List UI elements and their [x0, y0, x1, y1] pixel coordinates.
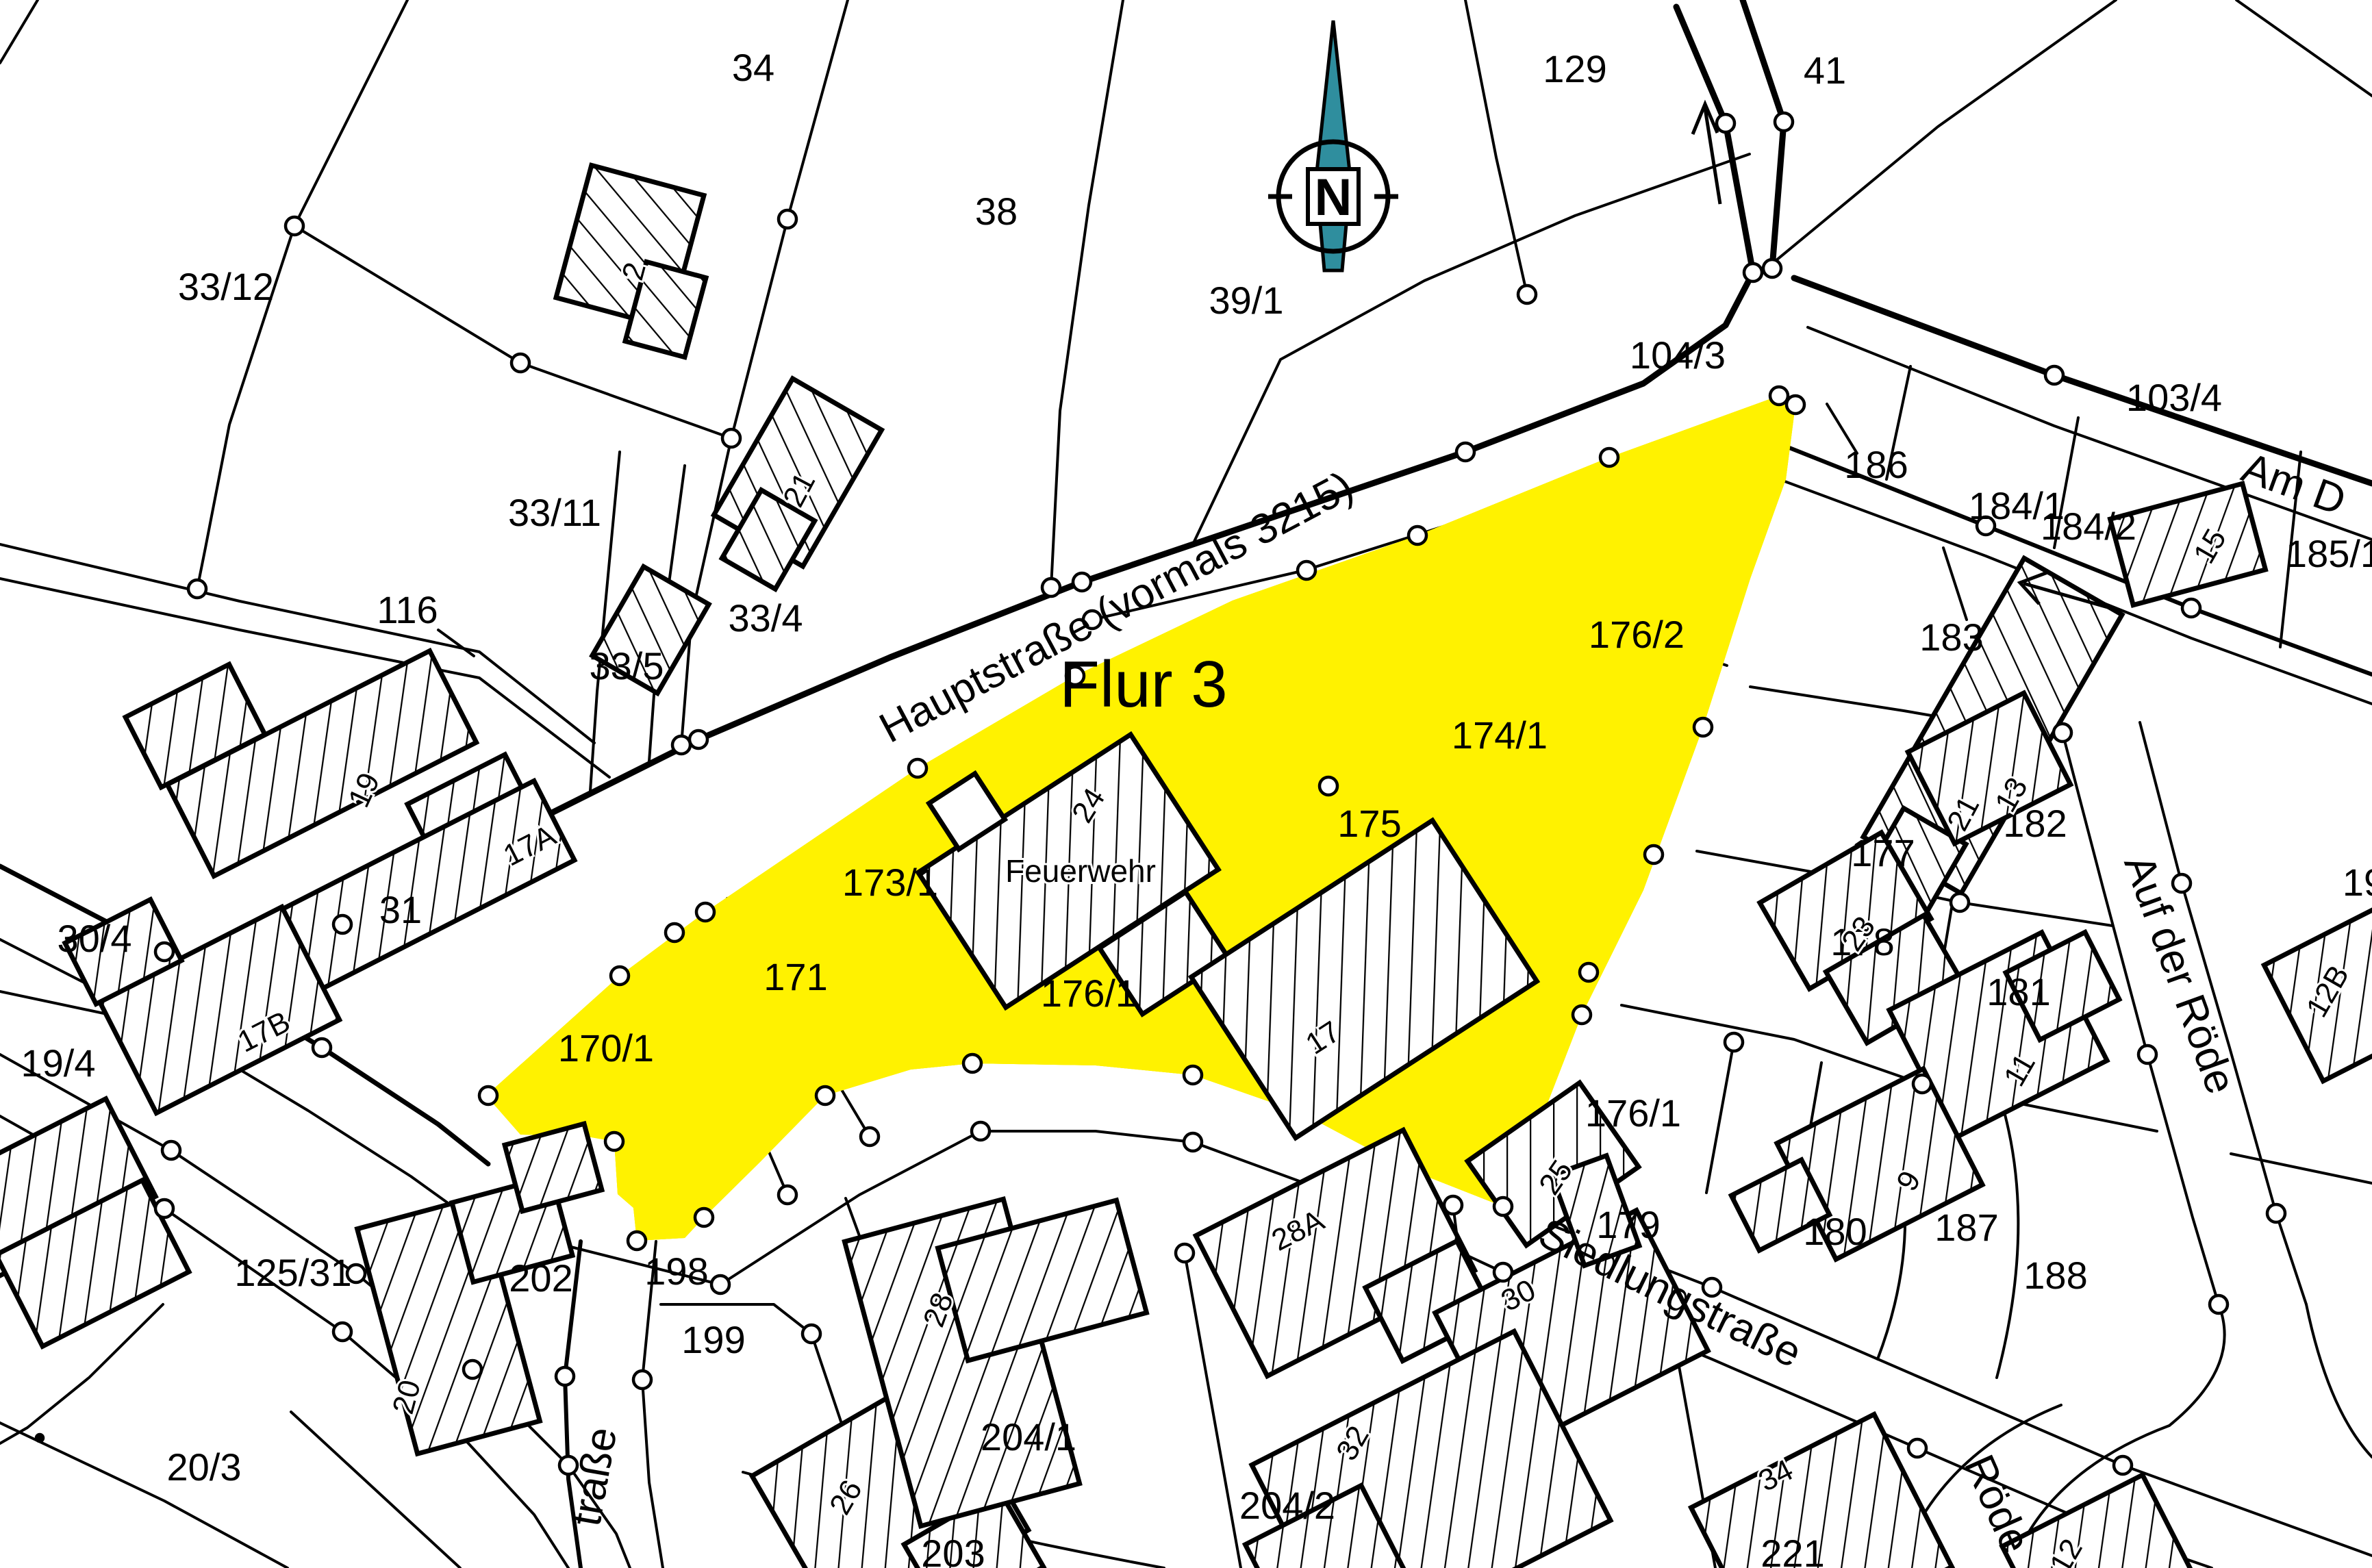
parcel-label-174-1: 174/1	[1452, 713, 1548, 757]
parcel-label-203: 203	[921, 1532, 985, 1568]
parcel-label-33-12: 33/12	[178, 265, 274, 308]
parcel-label-104-3: 104/3	[1630, 333, 1726, 377]
parcel-label-204-1: 204/1	[981, 1415, 1076, 1458]
parcel-label-19-4: 19/4	[21, 1041, 96, 1085]
parcel-label-34: 34	[732, 46, 774, 89]
parcel-label-38: 38	[975, 190, 1018, 233]
parcel-label-175: 175	[1337, 802, 1401, 845]
north-arrow-icon: N	[1268, 21, 1398, 270]
parcel-label-184-2: 184/2	[2041, 505, 2136, 548]
parcel-label-176-2: 176/2	[1589, 613, 1685, 656]
parcel-label-198: 198	[644, 1250, 708, 1293]
parcel-label-181: 181	[1986, 970, 2050, 1013]
cadastral-map: N 343839/112941104/3103/433/1233/1133/43…	[0, 0, 2372, 1568]
street-label-traße: traße	[562, 1424, 626, 1530]
parcel-label-180: 180	[1803, 1210, 1867, 1253]
parcel-label-186: 186	[1844, 443, 1908, 486]
parcel-label-188: 188	[2023, 1254, 2087, 1297]
parcel-label-39-1: 39/1	[1209, 279, 1284, 322]
parcel-label-199: 199	[681, 1318, 745, 1361]
poi-label-feuerwehr: Feuerwehr	[1005, 853, 1156, 889]
parcel-label-221: 221	[1761, 1532, 1824, 1568]
parcel-label-187: 187	[1934, 1206, 1998, 1249]
parcel-label-116: 116	[377, 588, 438, 631]
street-label-röde: Röde	[1955, 1448, 2039, 1560]
parcel-label-183: 183	[1919, 616, 1983, 659]
parcel-label-103-4: 103/4	[2126, 376, 2222, 419]
parcel-label-177: 177	[1851, 831, 1915, 874]
flur-title-flur-3: Flur 3	[1059, 648, 1227, 721]
parcel-label-129: 129	[1543, 47, 1606, 90]
parcel-label-185-1: 185/1	[2286, 532, 2372, 575]
buildings	[0, 165, 2372, 1568]
parcel-label-176-1-2: 176/1	[1041, 972, 1137, 1015]
parcel-label-33-4: 33/4	[729, 596, 803, 640]
parcel-label-202: 202	[509, 1256, 572, 1300]
parcel-label-30-4: 30/4	[58, 917, 132, 960]
parcel-label-31: 31	[379, 888, 422, 931]
parcel-label-204-2: 204/2	[1239, 1484, 1335, 1527]
parcel-label-19: 19	[2343, 861, 2372, 904]
parcel-label-170-1: 170/1	[558, 1026, 654, 1070]
parcel-label-176-1: 176/1	[1585, 1091, 1681, 1135]
parcel-label-33-11: 33/11	[508, 491, 601, 534]
map-canvas: N 343839/112941104/3103/433/1233/1133/43…	[0, 0, 2372, 1568]
road-arrow-icon	[1693, 104, 1720, 204]
north-letter: N	[1315, 168, 1352, 227]
parcel-label-171: 171	[764, 955, 827, 998]
parcel-label-125-31: 125/31	[234, 1251, 351, 1294]
parcel-label-41: 41	[1804, 49, 1846, 92]
parcel-label-33-5: 33/5	[590, 644, 664, 687]
parcel-label-173-1: 173/1	[842, 861, 938, 904]
parcel-label-20-3: 20/3	[167, 1445, 242, 1489]
